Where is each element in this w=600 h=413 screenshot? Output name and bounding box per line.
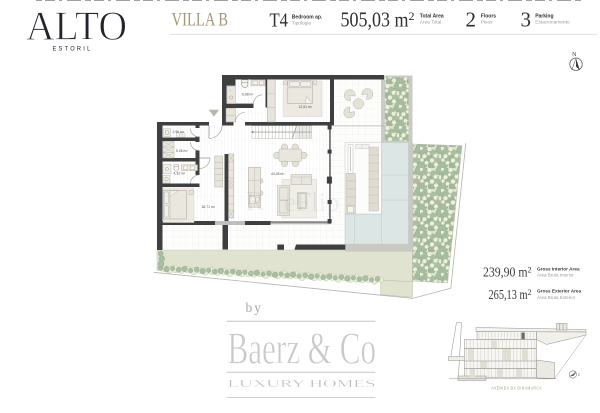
svg-text:Total Area: Total Area [420, 14, 444, 20]
svg-text:Estacionamento: Estacionamento [535, 20, 570, 26]
svg-text:eFlip: eFlip [284, 187, 340, 217]
svg-text:Área Bruta Interior: Área Bruta Interior [537, 272, 574, 278]
svg-text:3: 3 [521, 8, 532, 32]
svg-text:Gross Interior Area: Gross Interior Area [537, 266, 580, 271]
svg-text:2: 2 [466, 8, 477, 32]
svg-text:2,96 m²: 2,96 m² [173, 130, 185, 134]
svg-text:5,06 m²: 5,06 m² [176, 149, 188, 153]
svg-text:Área Bruta Exterior: Área Bruta Exterior [537, 294, 576, 300]
svg-text:18,71 m²: 18,71 m² [202, 205, 216, 209]
svg-text:by: by [246, 300, 264, 315]
svg-text:z: z [578, 372, 580, 377]
svg-text:44,45 m²: 44,45 m² [271, 172, 285, 176]
svg-text:265,13 m2: 265,13 m2 [489, 287, 532, 302]
svg-text:AVENIDA DA DINAMARCA: AVENIDA DA DINAMARCA [492, 386, 543, 391]
svg-text:Baerz & Co: Baerz & Co [228, 323, 377, 374]
svg-text:6,98 m²: 6,98 m² [242, 93, 254, 97]
svg-text:Área Total: Área Total [420, 19, 442, 26]
svg-text:Gross Exterior Area: Gross Exterior Area [537, 289, 582, 294]
svg-text:12,51 m²: 12,51 m² [299, 105, 313, 109]
svg-text:Pisos: Pisos [481, 20, 493, 26]
svg-text:LUXURY HOMES: LUXURY HOMES [228, 379, 376, 390]
svg-text:4,32 m²: 4,32 m² [174, 172, 186, 176]
svg-text:Tipologia: Tipologia [292, 20, 312, 26]
svg-text:Bedroom ap.: Bedroom ap. [292, 14, 323, 20]
svg-text:Parking: Parking [535, 14, 553, 20]
svg-text:ESTORIL: ESTORIL [53, 46, 93, 53]
svg-text:N: N [572, 52, 576, 58]
svg-text:ALTO: ALTO [26, 3, 127, 49]
svg-text:VILLA B: VILLA B [172, 10, 229, 31]
svg-text:Floors: Floors [481, 14, 496, 20]
svg-text:R: R [246, 186, 264, 216]
svg-text:T4: T4 [270, 10, 289, 32]
svg-text:239,90 m2: 239,90 m2 [483, 265, 532, 280]
svg-text:505,03 m2: 505,03 m2 [341, 8, 415, 32]
